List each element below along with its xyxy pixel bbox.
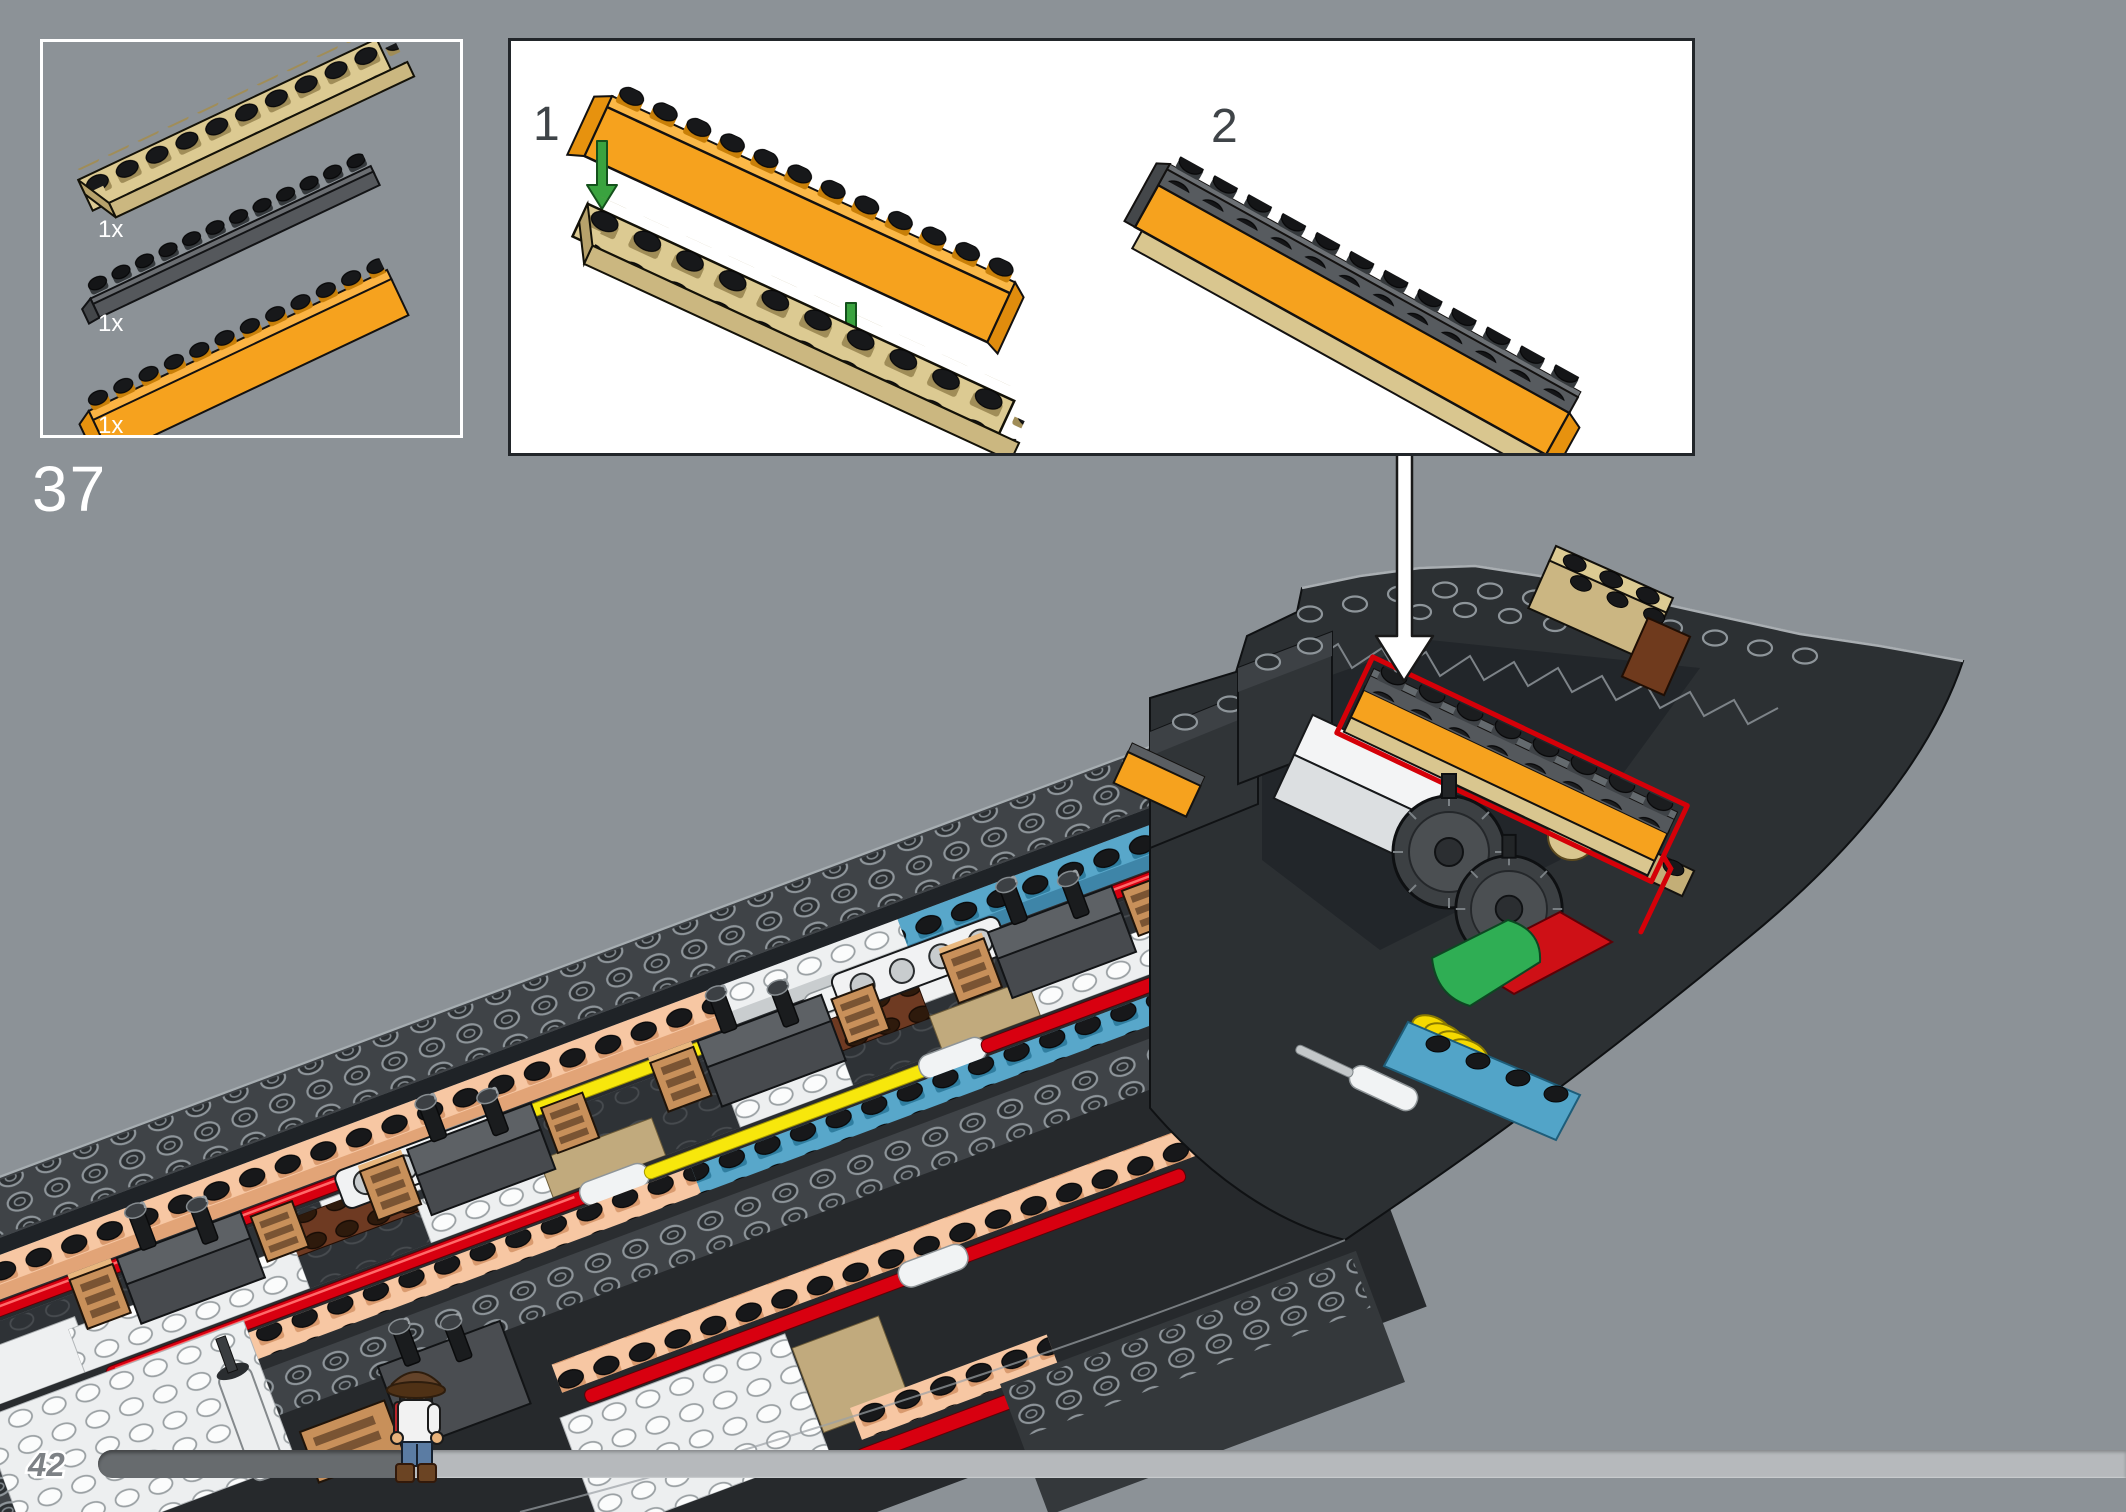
progress-bar-fill <box>98 1450 413 1478</box>
minifig-progress-marker[interactable] <box>378 1358 454 1494</box>
placement-down-arrow <box>1376 448 1433 681</box>
page-number-badge: 42 <box>16 1436 126 1492</box>
step-number: 37 <box>32 452 107 526</box>
substep2-assembly <box>1113 148 1639 453</box>
part-quantity: 1x <box>98 218 123 242</box>
instruction-panel: 1 2 <box>508 38 1695 456</box>
part-plate-2x10-tan <box>74 42 414 225</box>
part-quantity: 1x <box>98 312 123 336</box>
substep-graphics <box>511 41 1692 453</box>
lego-instructions-page: 1x 1x 1x 37 1 2 <box>0 0 2126 1512</box>
page-number: 42 <box>27 1446 65 1483</box>
parts-callout-box: 1x 1x 1x <box>40 39 463 438</box>
part-quantity: 1x <box>98 414 123 438</box>
